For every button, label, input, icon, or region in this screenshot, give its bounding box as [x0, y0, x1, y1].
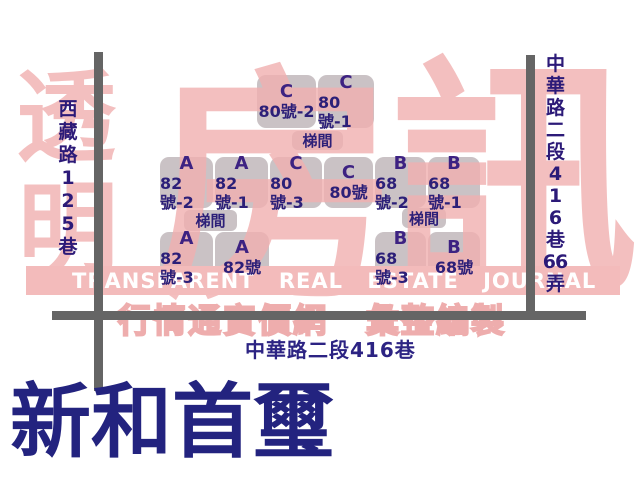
unit-box-a-82-1: A 82號-1 — [215, 157, 268, 208]
unit-number: 68號-1 — [428, 174, 480, 212]
unit-box-c-80: C 80號 — [324, 157, 373, 208]
unit-box-b-68-1: B 68號-1 — [428, 157, 480, 208]
unit-box-a-82-3: A 82號-3 — [160, 232, 213, 283]
unit-letter: C — [342, 163, 355, 183]
unit-number: 80號-1 — [318, 93, 374, 131]
unit-letter: B — [394, 154, 408, 174]
unit-number: 68號 — [435, 258, 473, 277]
unit-letter: C — [280, 82, 293, 102]
unit-number: 80號-2 — [258, 102, 314, 121]
unit-number: 80號 — [329, 183, 367, 202]
stairwell-label: 梯間 — [195, 210, 225, 231]
watermark-band-text: TRANSPARENT REAL ESTATE JOURNAL — [26, 269, 596, 293]
road-right-vertical — [526, 55, 535, 316]
road-bottom-horizontal — [52, 311, 586, 320]
unit-box-b-68-3: B 68號-3 — [375, 232, 426, 283]
street-label-bottom: 中華路二段416巷 — [245, 334, 416, 363]
unit-number: 82號-1 — [215, 174, 268, 212]
unit-letter: B — [447, 154, 461, 174]
street-label-right: 中 華 路 二 段 4 1 6 巷 66 弄 — [542, 53, 568, 295]
unit-number: 68號-3 — [375, 249, 426, 287]
floorplan-diagram: C 80號-2 C 80號-1 A 82號-2 A 82號-1 C 80號-3 … — [0, 0, 640, 480]
road-left-vertical — [94, 52, 103, 391]
building-title: 新和首璽 — [10, 381, 334, 466]
unit-box-b-68-2: B 68號-2 — [375, 157, 426, 208]
unit-number: 82號-2 — [160, 174, 213, 212]
unit-box-c-80-1: C 80號-1 — [318, 75, 374, 128]
unit-number: 82號-3 — [160, 249, 213, 287]
unit-box-a-82-2: A 82號-2 — [160, 157, 213, 208]
stairwell-label: 梯間 — [409, 208, 439, 229]
stairwell-label: 梯間 — [302, 130, 332, 151]
unit-box-b-68: B 68號 — [428, 232, 480, 283]
street-label-left: 西 藏 路 1 2 5 巷 — [56, 98, 80, 259]
unit-letter: A — [235, 154, 249, 174]
unit-letter: A — [180, 154, 194, 174]
unit-box-c-80-2: C 80號-2 — [257, 75, 316, 128]
unit-letter: A — [180, 229, 194, 249]
unit-letter: B — [394, 229, 408, 249]
unit-number: 80號-3 — [270, 174, 322, 212]
unit-box-a-82: A 82號 — [215, 232, 269, 283]
stairwell-box-top: 梯間 — [292, 131, 343, 150]
unit-number: 68號-2 — [375, 174, 426, 212]
unit-letter: A — [235, 238, 249, 258]
unit-letter: C — [339, 73, 352, 93]
unit-letter: C — [289, 154, 302, 174]
unit-letter: B — [447, 238, 461, 258]
unit-number: 82號 — [223, 258, 261, 277]
unit-box-c-80-3: C 80號-3 — [270, 157, 322, 208]
